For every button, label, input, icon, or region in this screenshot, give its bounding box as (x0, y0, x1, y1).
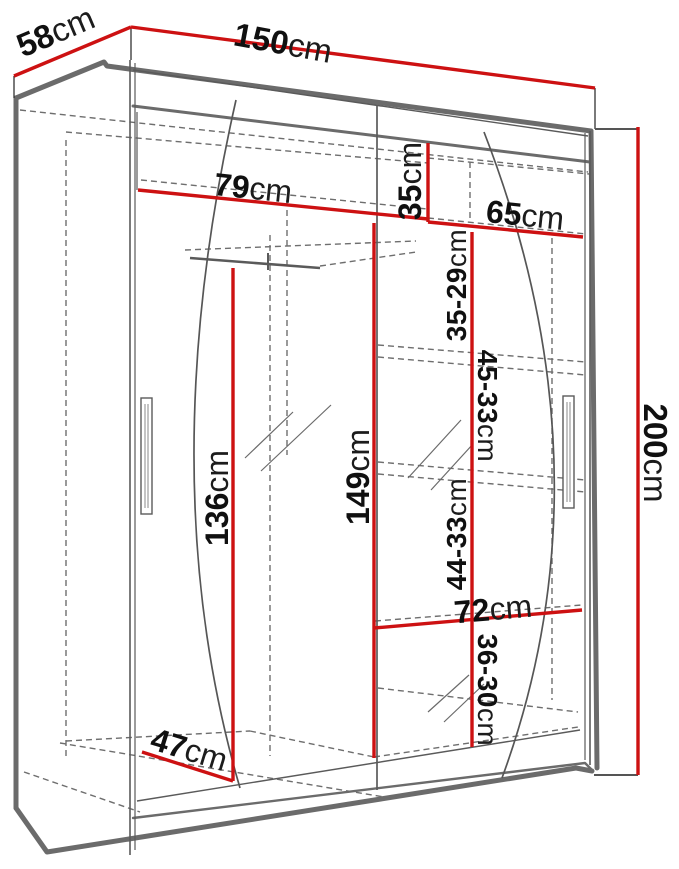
height-connector-lines (594, 129, 638, 775)
label-149cm: 149cm (340, 429, 376, 525)
label-36-30cm: 36-30cm (472, 634, 503, 746)
label-47cm: 47cm (147, 721, 232, 778)
label-44-33cm: 44-33cm (441, 478, 472, 590)
label-200cm: 200cm (637, 403, 674, 502)
clothes-rail (190, 253, 320, 270)
label-45-33cm: 45-33cm (472, 350, 503, 462)
label-35cm: 35cm (392, 142, 428, 220)
label-65cm: 65cm (484, 193, 566, 237)
label-35-29cm: 35-29cm (441, 229, 472, 341)
dimension-lines (14, 27, 638, 781)
cabinet-outline (16, 62, 597, 852)
label-58cm: 58cm (11, 0, 100, 64)
label-72cm: 72cm (452, 588, 533, 631)
label-136cm: 136cm (199, 450, 235, 546)
label-79cm: 79cm (212, 166, 294, 210)
left-door-handle (141, 398, 152, 514)
wardrobe-dimension-diagram: 58cm 150cm 200cm 79cm 35cm 65cm 35-29cm … (0, 0, 679, 869)
label-150cm: 150cm (231, 15, 335, 69)
dimension-labels: 58cm 150cm 200cm 79cm 35cm 65cm 35-29cm … (11, 0, 674, 778)
right-door-handle (563, 396, 574, 508)
